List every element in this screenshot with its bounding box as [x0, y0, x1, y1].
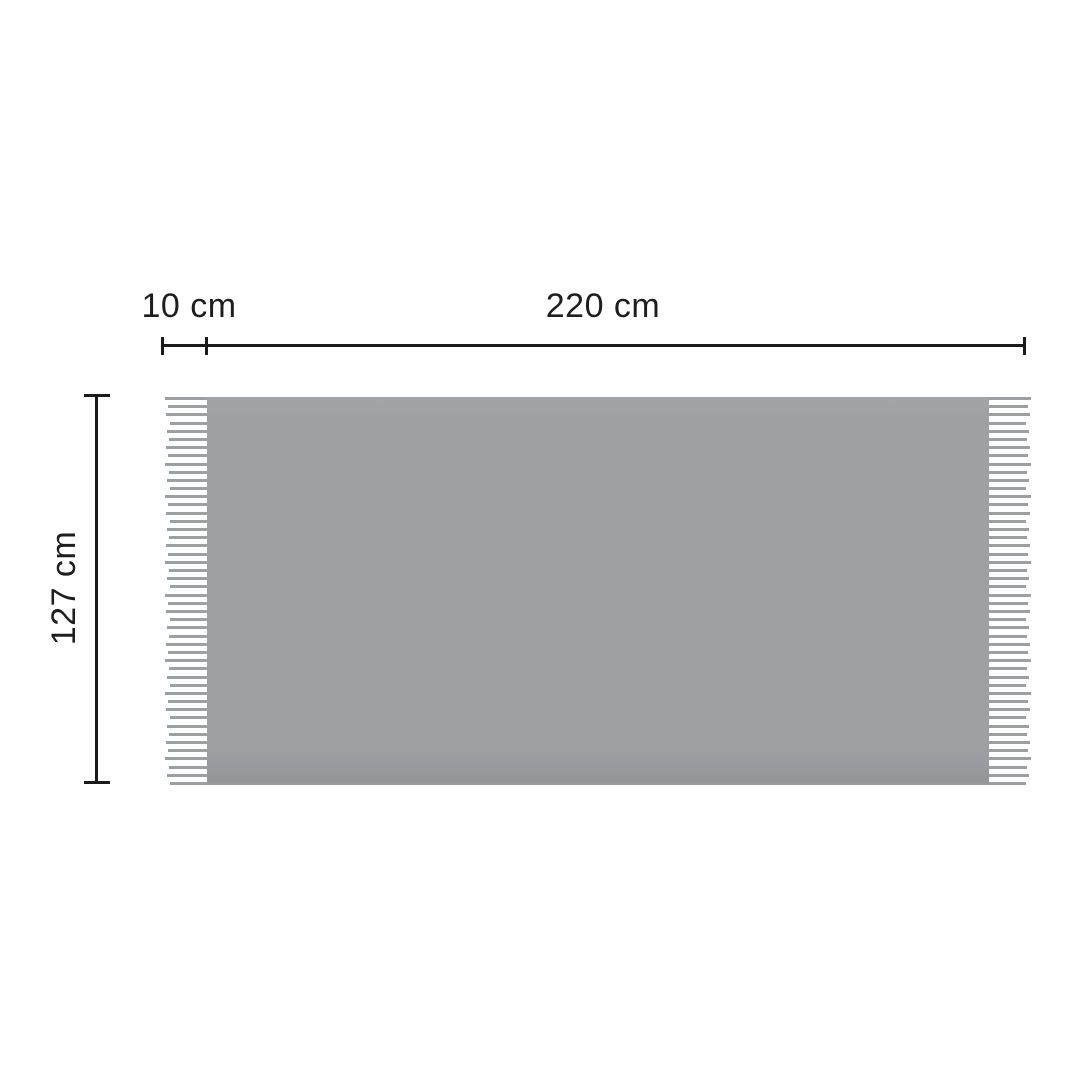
fringe-line [989, 528, 1029, 531]
fringe-line [170, 782, 207, 785]
fringe-line [989, 585, 1026, 588]
fringe-line [989, 413, 1030, 416]
fringe-line [989, 503, 1028, 506]
fringe-line [989, 733, 1027, 736]
fringe-line [168, 454, 207, 457]
fringe-line [989, 594, 1031, 597]
fringe-line [989, 774, 1029, 777]
fringe-line [167, 577, 207, 580]
fringe-width-label: 10 cm [139, 286, 239, 326]
fringe-line [169, 733, 207, 736]
height-dimension-tick-bottom [84, 781, 110, 784]
fringe-line [989, 610, 1030, 613]
fringe-line [168, 651, 207, 654]
fringe-line [165, 659, 207, 662]
fringe-line [169, 438, 207, 441]
fringe-line [989, 684, 1026, 687]
fringe-line [168, 553, 207, 556]
fringe-line [165, 594, 207, 597]
fringe-line [989, 471, 1027, 474]
fringe-line [169, 766, 207, 769]
fringe-line [989, 463, 1031, 466]
fringe-line [167, 676, 207, 679]
fringe-line [989, 651, 1028, 654]
fringe-line [168, 749, 207, 752]
fringe-line [989, 643, 1030, 646]
fringe-line [989, 553, 1028, 556]
fringe-line [166, 446, 207, 449]
fringe-line [170, 487, 207, 490]
blanket-fabric [207, 397, 989, 785]
fringe-line [166, 643, 207, 646]
fringe-line [989, 520, 1026, 523]
fringe-line [989, 495, 1031, 498]
fringe-line [166, 544, 207, 547]
fringe-line [169, 667, 207, 670]
fringe-line [989, 635, 1027, 638]
fringe-line [989, 512, 1030, 515]
fringe-line [989, 667, 1027, 670]
fringe-line [165, 397, 207, 400]
height-dimension-tick-top [84, 394, 110, 397]
fringe-line [168, 602, 207, 605]
fringe-line [989, 725, 1029, 728]
fringe-line [989, 659, 1031, 662]
fringe-line [167, 774, 207, 777]
fringe-line [989, 602, 1028, 605]
blanket-right-fringe [989, 397, 1031, 785]
fringe-line [167, 626, 207, 629]
fringe-line [170, 684, 207, 687]
blanket-height-label: 127 cm [44, 508, 84, 668]
fringe-line [166, 610, 207, 613]
blanket-left-fringe [165, 397, 207, 785]
fringe-line [167, 479, 207, 482]
fringe-line [170, 618, 207, 621]
fringe-line [169, 569, 207, 572]
fringe-line [989, 708, 1030, 711]
fringe-line [989, 544, 1030, 547]
fringe-line [989, 487, 1026, 490]
fringe-line [166, 741, 207, 744]
fringe-line [170, 585, 207, 588]
fringe-line [989, 536, 1027, 539]
fringe-line [168, 405, 207, 408]
fringe-line [170, 520, 207, 523]
fringe-line [165, 463, 207, 466]
fringe-line [989, 577, 1029, 580]
fringe-line [989, 479, 1029, 482]
fringe-line [165, 757, 207, 760]
width-dimension-tick-middle [205, 337, 208, 355]
fringe-line [989, 422, 1026, 425]
fringe-line [170, 716, 207, 719]
fringe-line [989, 405, 1028, 408]
fringe-line [170, 422, 207, 425]
fringe-line [989, 692, 1031, 695]
fringe-line [166, 413, 207, 416]
fringe-line [989, 766, 1027, 769]
fringe-line [167, 528, 207, 531]
fringe-line [989, 626, 1029, 629]
fringe-line [165, 692, 207, 695]
fringe-line [989, 716, 1026, 719]
blanket-width-label: 220 cm [543, 286, 663, 326]
fringe-line [169, 635, 207, 638]
fringe-line [165, 495, 207, 498]
fringe-line [168, 503, 207, 506]
fringe-line [989, 446, 1030, 449]
fringe-line [166, 512, 207, 515]
fringe-line [989, 561, 1031, 564]
blanket-dimension-diagram: 10 cm 220 cm 127 cm [0, 0, 1080, 1080]
height-dimension-line [95, 395, 98, 784]
fringe-line [989, 454, 1028, 457]
width-dimension-tick-right [1023, 337, 1026, 355]
fringe-line [989, 782, 1026, 785]
width-dimension-tick-left [161, 337, 164, 355]
fringe-line [167, 725, 207, 728]
width-dimension-line [162, 344, 1025, 347]
fringe-line [989, 757, 1031, 760]
fringe-line [169, 536, 207, 539]
fringe-line [989, 700, 1028, 703]
fringe-line [989, 676, 1029, 679]
fringe-line [989, 569, 1027, 572]
fringe-line [166, 708, 207, 711]
fringe-line [169, 471, 207, 474]
fringe-line [989, 397, 1031, 400]
fringe-line [168, 700, 207, 703]
fringe-line [989, 618, 1026, 621]
fringe-line [167, 430, 207, 433]
fringe-line [989, 430, 1029, 433]
fringe-line [989, 741, 1030, 744]
fringe-line [165, 561, 207, 564]
fringe-line [989, 438, 1027, 441]
fringe-line [989, 749, 1028, 752]
